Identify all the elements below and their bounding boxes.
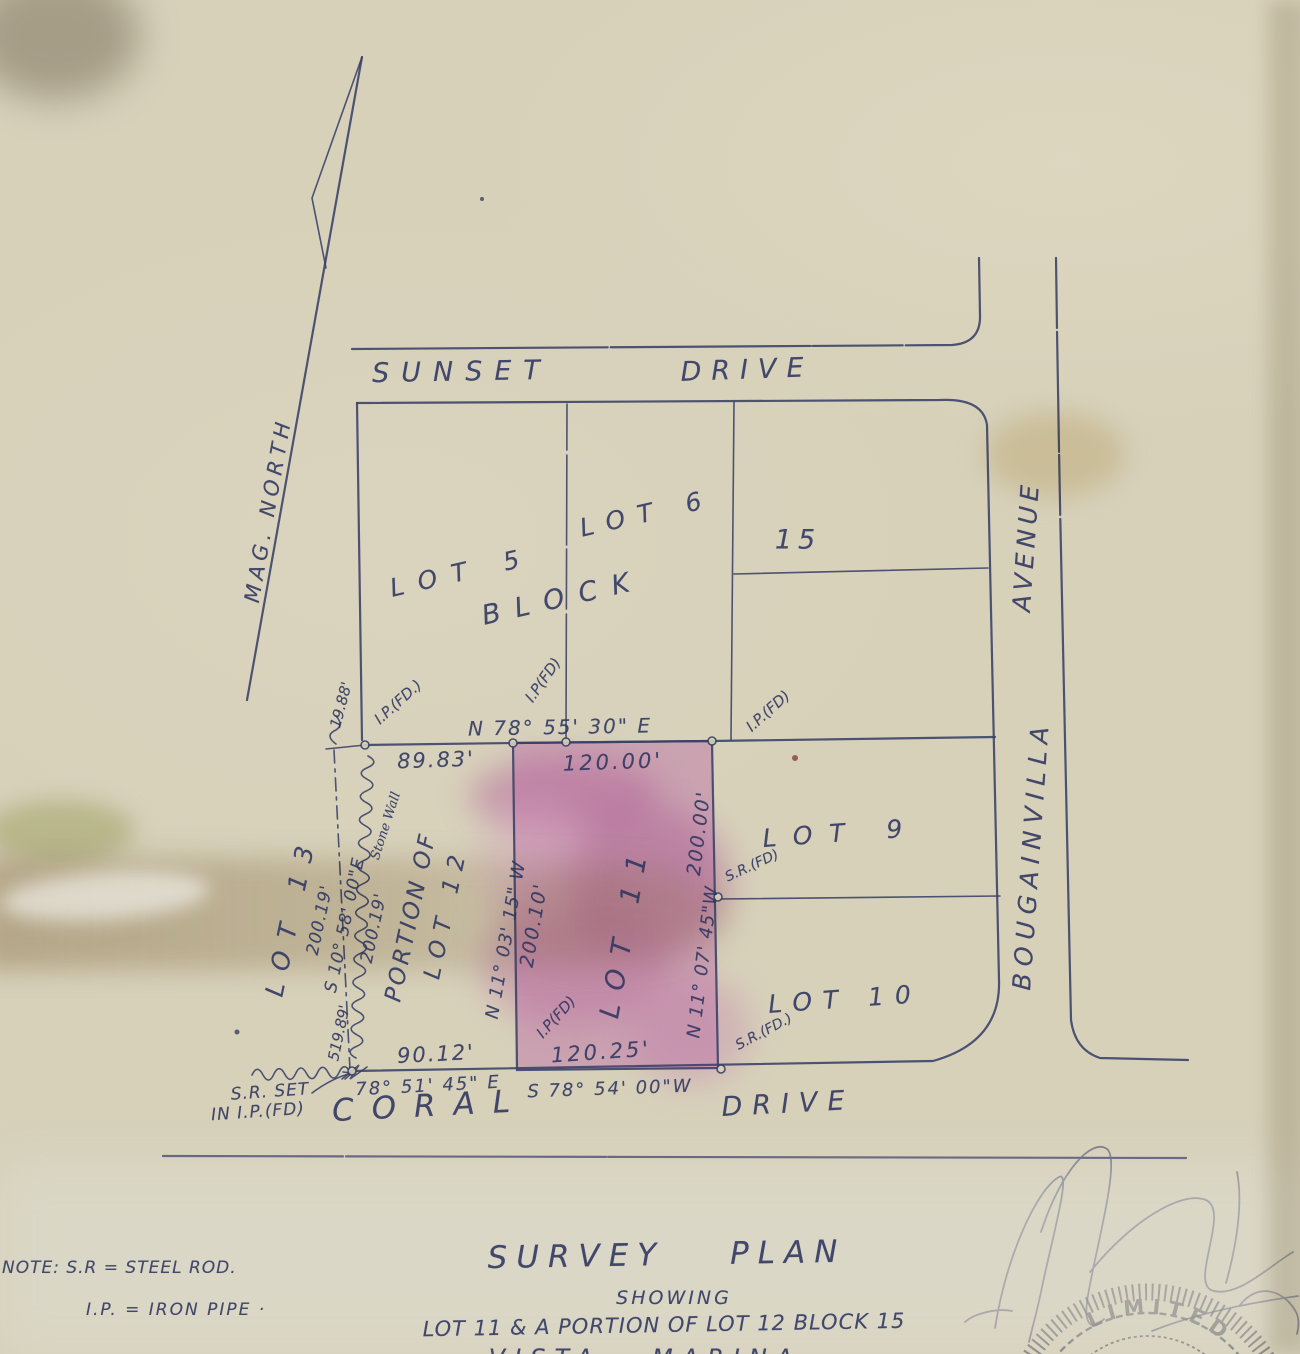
- lot9-lot10-divider: [718, 896, 1000, 899]
- distance-9012: 90.12': [396, 1040, 475, 1068]
- title-survey-plan: SURVEY PLAN: [487, 1234, 846, 1276]
- stamp-arc-text: LIMITED: [1083, 1294, 1238, 1347]
- coral-drive-south-line: [163, 1156, 1186, 1158]
- lot15-divider: [734, 568, 988, 574]
- sunset-drive-north-line: [352, 258, 980, 349]
- distance-8983: 89.83': [397, 747, 476, 774]
- note-line2: I.P. = IRON PIPE ·: [86, 1300, 266, 1320]
- survey-plan-sheet: LIMITED SUNSET DRIVE CORAL DRIVE BOUGAIN…: [0, 0, 1300, 1354]
- lot5-lot6-divider: [566, 404, 567, 740]
- rubber-stamp: LIMITED: [1008, 1292, 1288, 1354]
- north-arrow: [247, 57, 362, 700]
- title-vista-marina: VISTA MARINA: [489, 1344, 801, 1354]
- svg-text:LIMITED: LIMITED: [1083, 1294, 1238, 1347]
- street-label-sunset-drive: DRIVE: [680, 352, 814, 388]
- lot6-lot15-divider: [731, 402, 734, 740]
- bougainvilla-east-line: [1056, 258, 1188, 1060]
- chain-line-coral: [252, 1067, 350, 1080]
- title-showing: SHOWING: [616, 1287, 732, 1309]
- note-line1: NOTE: S.R = STEEL ROD.: [2, 1258, 237, 1278]
- bearing-north-line: N 78° 55' 30" E: [468, 713, 652, 740]
- plan-linework: LIMITED: [0, 0, 1300, 1354]
- west-jog-line: [326, 745, 365, 749]
- block-number-label: 15: [775, 525, 821, 556]
- distance-12000: 120.00': [562, 748, 663, 775]
- street-label-sunset: SUNSET: [372, 355, 552, 389]
